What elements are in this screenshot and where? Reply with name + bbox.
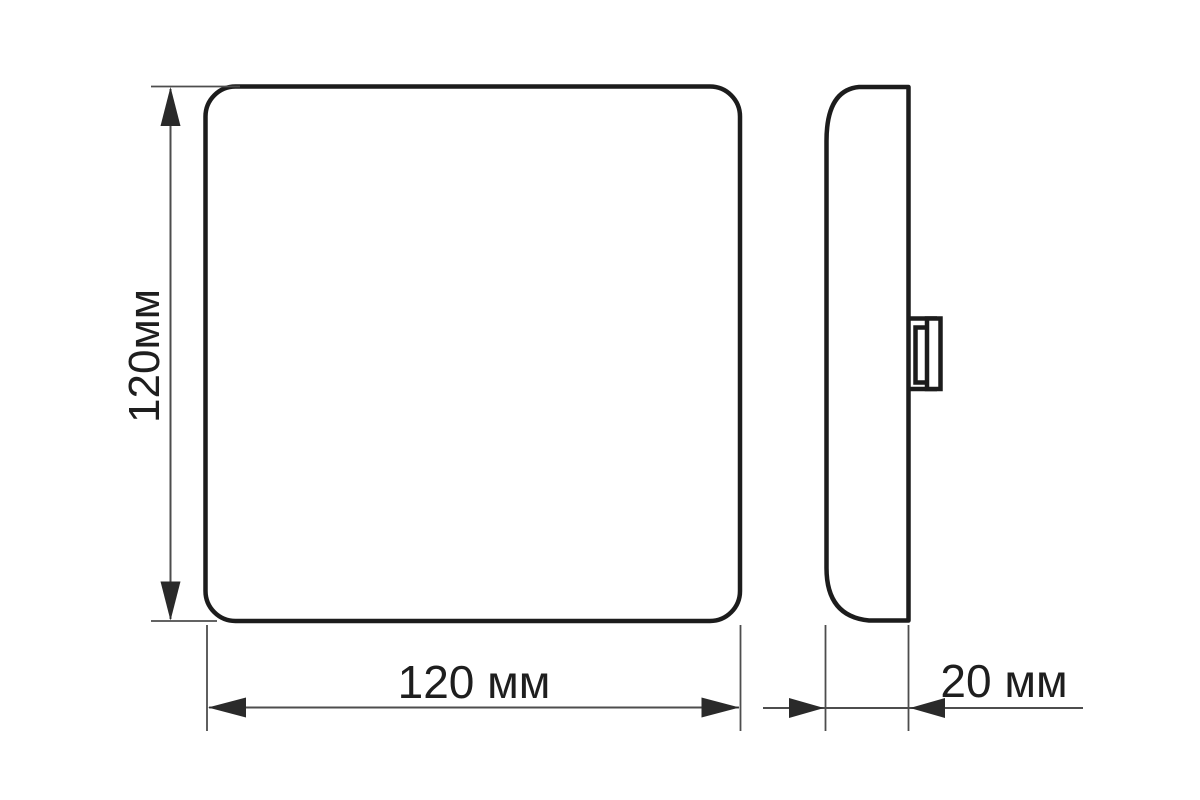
arrowhead-up-icon — [161, 87, 181, 126]
drawing-canvas: 120мм 120 мм 20 мм — [0, 0, 1200, 800]
mounting-clip — [908, 319, 941, 390]
arrowhead-right-icon — [702, 698, 740, 718]
depth-dimension: 20 мм — [763, 625, 1083, 731]
arrowhead-down-icon — [161, 582, 181, 621]
technical-drawing: 120мм 120 мм 20 мм — [0, 0, 1200, 800]
width-dimension-label: 120 мм — [398, 656, 551, 708]
front-view-outline — [206, 87, 741, 622]
arrowhead-right-icon — [789, 698, 824, 718]
width-dimension: 120 мм — [207, 625, 741, 731]
side-view-outline — [827, 87, 909, 621]
height-dimension-label: 120мм — [120, 289, 169, 423]
depth-dimension-label: 20 мм — [940, 655, 1067, 707]
mounting-clip-outer-plate — [927, 319, 941, 390]
arrowhead-left-icon — [208, 698, 246, 718]
